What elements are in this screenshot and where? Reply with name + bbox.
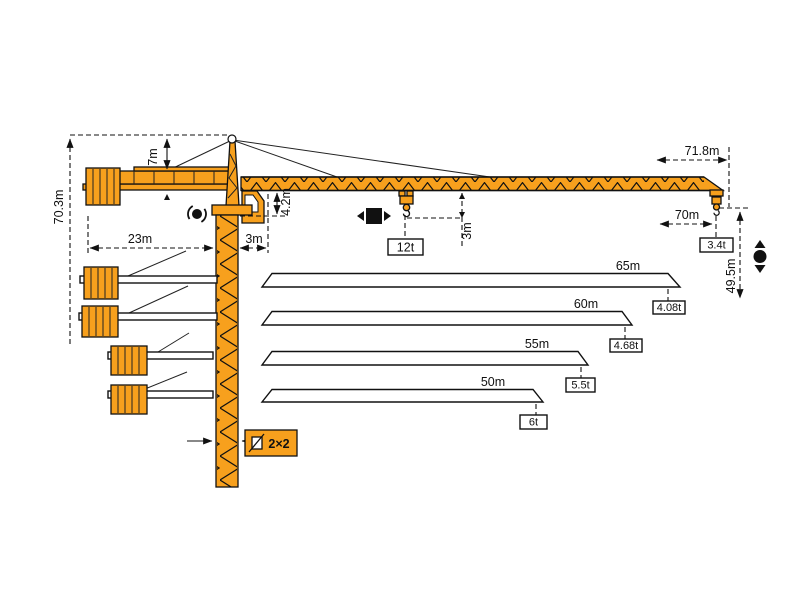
variant-length-label: 65m <box>616 259 640 273</box>
variant-tip-load: 5.5t <box>571 380 589 392</box>
dim-tower-head-arrow <box>164 194 170 200</box>
mast <box>216 215 238 487</box>
tower-head <box>226 135 239 206</box>
tip-trolley-and-hook <box>710 190 723 215</box>
apex-pivot <box>228 135 236 143</box>
diagram-canvas: 7m 23m 3m 4.2m 12t 3m 71.8m 70m 3.4t 49.… <box>0 0 800 600</box>
dim-hook-clearance-label: 3m <box>460 222 474 239</box>
jib-variant-55m: 55m 5.5t <box>262 337 595 392</box>
variant-tip-load: 6t <box>529 417 538 429</box>
trolley-and-hook <box>399 191 413 217</box>
jib-lattice <box>241 177 704 191</box>
mast-lattice <box>217 215 237 487</box>
jib-variant-65m: 65m 4.08t <box>262 259 685 314</box>
counterweight-row-3 <box>108 333 213 375</box>
crane-spec-diagram: 7m 23m 3m 4.2m 12t 3m 71.8m 70m 3.4t 49.… <box>0 0 800 600</box>
counterweight-row-1 <box>80 251 217 299</box>
dim-overall-radius-label: 71.8m <box>685 144 720 158</box>
dim-radius-label: 70m <box>675 208 699 222</box>
dim-counter-jib-label: 23m <box>128 232 152 246</box>
dim-rear-offset-label: 3m <box>245 232 262 246</box>
slewing-platform <box>212 205 252 215</box>
variant-length-label: 55m <box>525 337 549 351</box>
slewing-rotation-icon <box>184 201 209 226</box>
variant-tip-load: 4.68t <box>614 340 638 352</box>
jib-variant-50m: 50m 6t <box>262 375 547 429</box>
counterweight-block-main <box>86 168 120 205</box>
max-load-value: 12t <box>397 241 415 255</box>
variant-length-label: 60m <box>574 297 598 311</box>
hoisting-icon <box>754 240 767 273</box>
counter-jib <box>83 167 234 205</box>
dim-total-height-label: 70.3m <box>52 190 66 225</box>
variant-tip-load: 4.08t <box>657 302 681 314</box>
jib <box>241 177 723 191</box>
dim-hook-height-label: 49.5m <box>724 259 738 294</box>
trolley-travel-icon <box>357 208 391 224</box>
tip-load-value: 3.4t <box>707 240 725 252</box>
variant-length-label: 50m <box>481 375 505 389</box>
jib-variant-60m: 60m 4.68t <box>262 297 642 352</box>
counterweight-row-4 <box>108 372 213 414</box>
mast-section-callout: 2×2 <box>187 430 297 456</box>
mast-section-value: 2×2 <box>268 437 289 451</box>
dim-jib-root-label: 4.2m <box>279 188 293 216</box>
dim-tower-head-label: 7m <box>146 148 160 165</box>
